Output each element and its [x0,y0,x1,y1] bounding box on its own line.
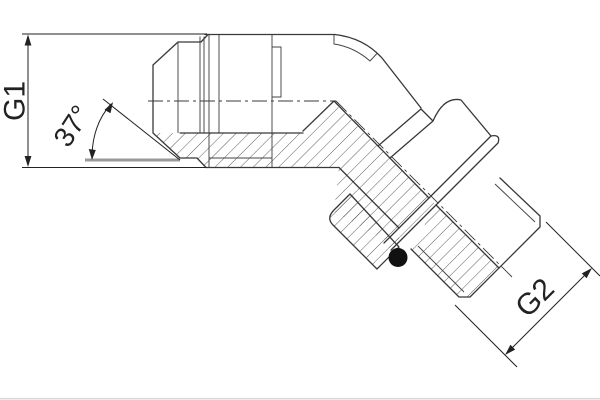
angle-label: 37° [47,100,96,152]
g1-dimension-label: G1 [0,81,32,121]
o-ring-dot [389,248,408,267]
section-hatching [153,103,499,297]
g2-dimension-label: G2 [509,272,561,324]
o-ring [389,248,408,267]
drawing-canvas: G1 37° G2 [0,0,600,400]
g2-dimension: G2 [455,222,600,367]
angle-flank-line [103,99,180,160]
fitting-drawing: G1 37° G2 [0,0,600,400]
angle-annotation: 37° [47,99,180,160]
